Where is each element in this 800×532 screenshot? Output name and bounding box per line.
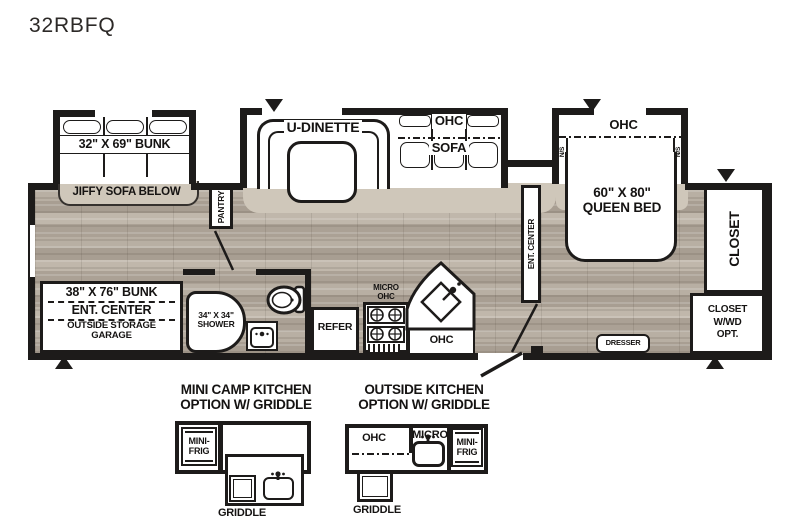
garage-label: GARAGE (43, 331, 180, 342)
window-gap (30, 225, 35, 277)
wall (765, 183, 772, 360)
sofa-label: SOFA (398, 141, 500, 155)
udinette-table (287, 141, 357, 203)
garage-bunk-label: 38" X 76" BUNK (43, 285, 180, 300)
ns-right-label: N/S (673, 137, 683, 167)
stove-burner-panel (367, 326, 405, 343)
entry-door-gap (478, 353, 523, 360)
slide-arrow-icon (717, 169, 735, 182)
dresser-label: DRESSER (598, 336, 648, 351)
garage-entcenter-label: ENT. CENTER (43, 303, 180, 318)
mini-camp-sink (263, 477, 294, 500)
bed-ohc-line (559, 136, 688, 138)
outside-ohc-line (352, 453, 410, 455)
bathroom-wall (305, 269, 311, 359)
sofa-ohc-label: OHC (398, 115, 500, 128)
outside-griddle-label: GRIDDLE (341, 504, 413, 518)
closet-label: CLOSET (726, 199, 742, 279)
sofa-ohc-line (398, 137, 500, 139)
bunk-cushion (63, 120, 101, 134)
slide-arrow-icon (706, 356, 724, 369)
micro-ohc-label: MICRO OHC (366, 283, 406, 303)
floorplan-canvas: 32RBFQ 32" X 69" BUNK JIFFY SOFA BELOW U… (0, 0, 800, 532)
bed-ohc-label: OHC (559, 118, 688, 132)
outside-ohc-label: OHC (352, 430, 396, 448)
outside-micro-label: MICRO (412, 429, 448, 442)
bunk-slide-label: 32" X 69" BUNK (60, 135, 189, 154)
wall (28, 353, 772, 360)
slide-arrow-icon (55, 356, 73, 369)
closet-wwd-label: CLOSET W/WD OPT. (692, 300, 763, 346)
bunk-cushion (149, 120, 187, 134)
slide-arrow-icon (583, 99, 601, 112)
divider (218, 423, 223, 472)
refrigerator-label: REFER (313, 320, 357, 336)
stove-vent (368, 344, 400, 352)
outside-sink (412, 441, 445, 467)
entry-step (531, 346, 543, 353)
stove-burner-panel (367, 306, 405, 324)
galley-top-area (508, 167, 552, 184)
mini-camp-title: MINI CAMP KITCHEN OPTION W/ GRIDDLE (166, 383, 326, 413)
queen-bed-label: 60" X 80" QUEEN BED (577, 184, 667, 218)
jiffy-sofa-label: JIFFY SOFA BELOW (58, 181, 195, 203)
window-gap (594, 108, 646, 115)
wall (501, 160, 557, 167)
outside-griddle (357, 471, 393, 502)
pantry-label: PANTRY (214, 177, 228, 237)
bathroom-sink (246, 321, 278, 351)
mini-frig-label: MINI- FRIG (182, 431, 216, 462)
ent-center-label: ENT. CENTER (525, 202, 537, 286)
slide-arrow-icon (265, 99, 283, 112)
kitchen-ohc-label: OHC (410, 331, 473, 350)
ns-left-label: N/S (557, 137, 567, 167)
wall (685, 183, 772, 190)
udinette-label: U-DINETTE (258, 120, 388, 136)
bunk-cushion (106, 120, 144, 134)
mini-camp-griddle-label: GRIDDLE (206, 507, 278, 521)
bathroom-wall (183, 269, 215, 275)
mini-camp-griddle (229, 475, 256, 502)
outside-kitchen-title: OUTSIDE KITCHEN OPTION W/ GRIDDLE (344, 383, 504, 413)
shower-label: 34" X 34" SHOWER (188, 308, 244, 332)
outside-mini-frig-label: MINI- FRIG (452, 432, 482, 463)
bathroom-wall (256, 269, 311, 275)
model-title: 32RBFQ (29, 14, 116, 38)
window-gap (95, 110, 152, 117)
